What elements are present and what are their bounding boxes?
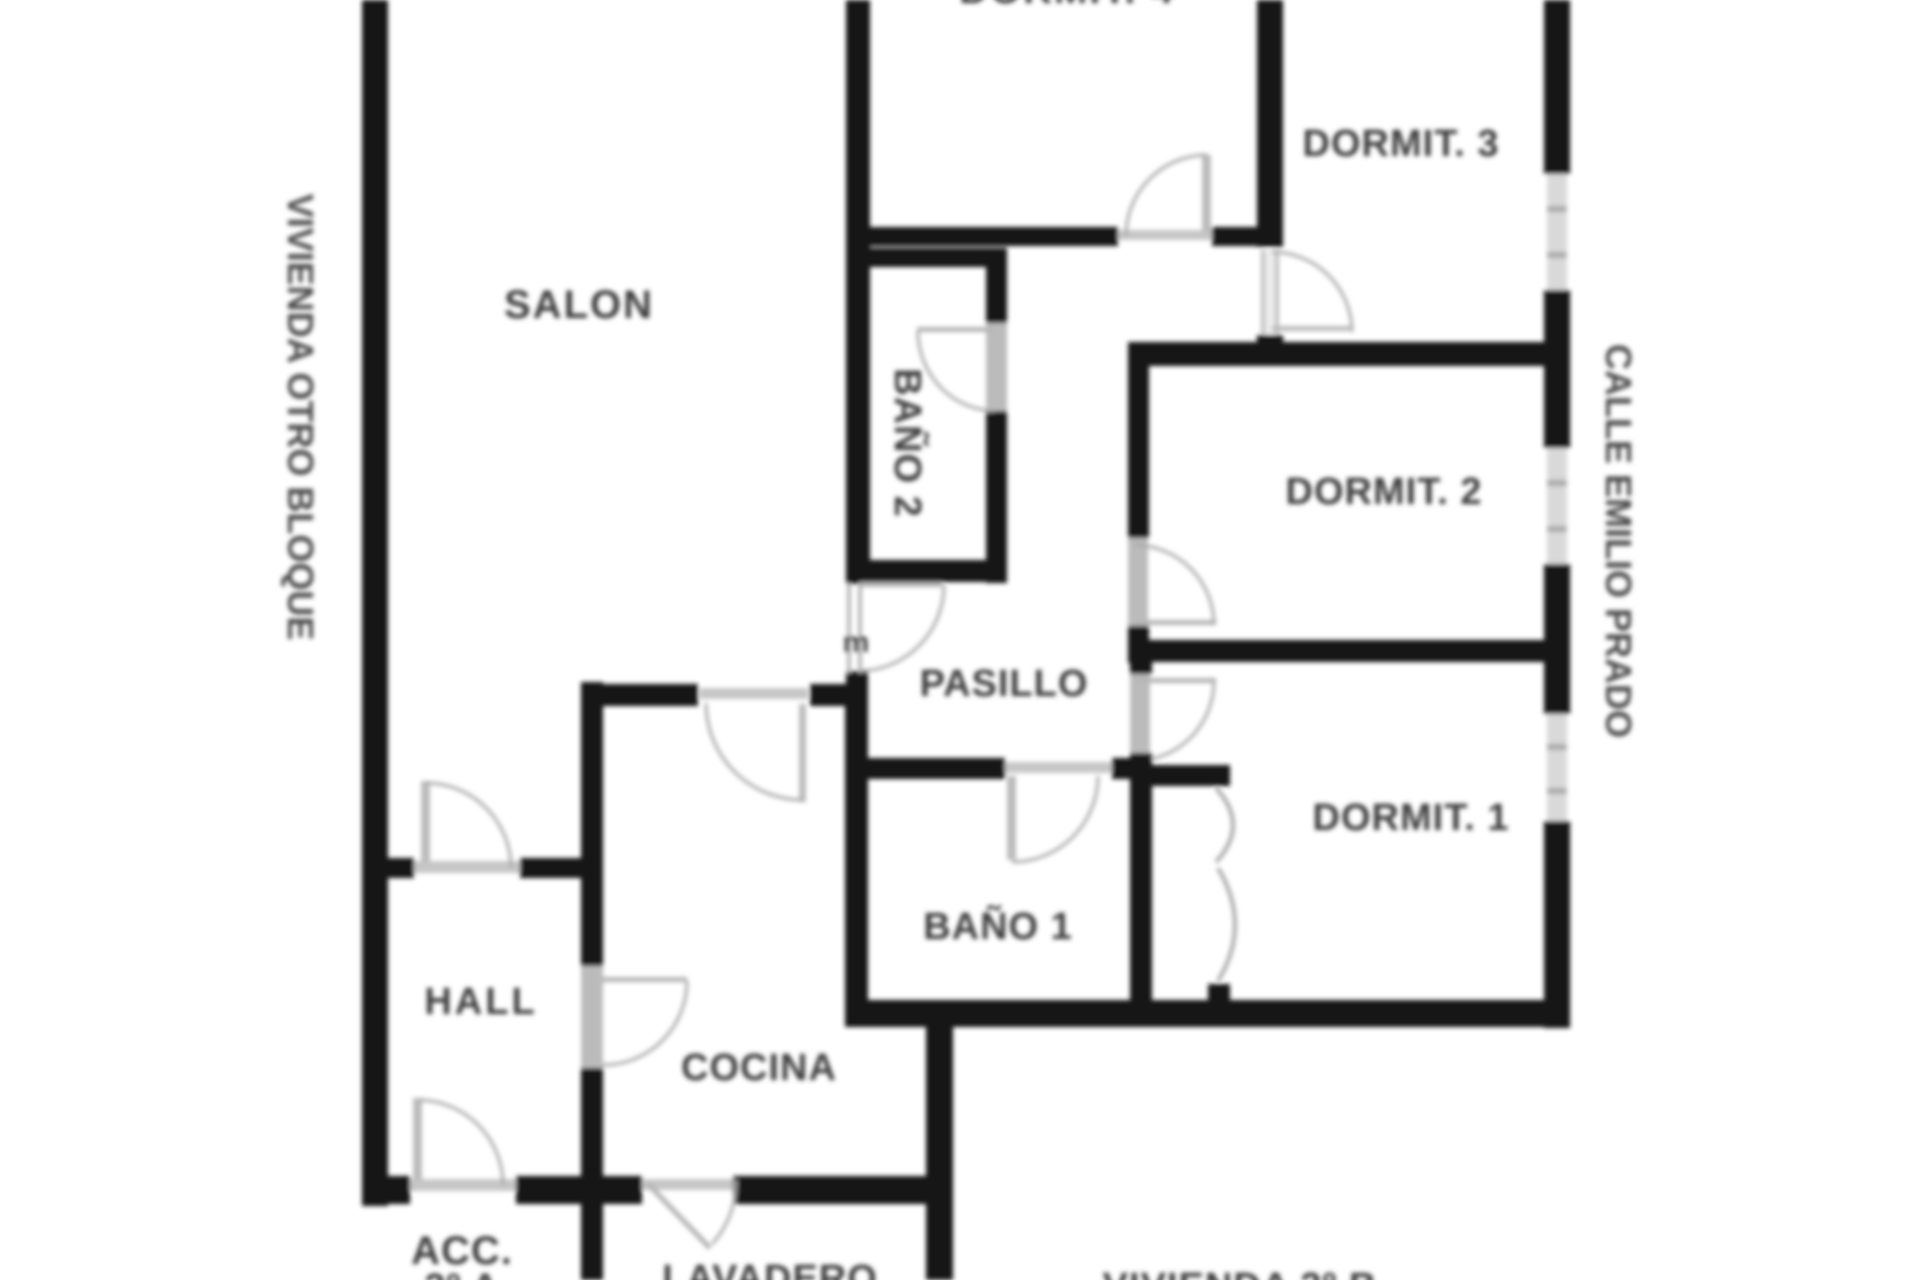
svg-text:DORMIT. 3: DORMIT. 3 <box>1303 123 1500 165</box>
svg-text:CALLE EMILIO PRADO: CALLE EMILIO PRADO <box>1598 344 1639 738</box>
svg-text:BAÑO 2: BAÑO 2 <box>886 368 930 518</box>
svg-text:BAÑO 1: BAÑO 1 <box>923 904 1073 948</box>
svg-text:DORMIT. 4: DORMIT. 4 <box>959 0 1175 12</box>
svg-text:m: m <box>843 626 870 659</box>
svg-text:VIVIENDA 2º B: VIVIENDA 2º B <box>1103 1266 1378 1280</box>
svg-text:DORMIT. 1: DORMIT. 1 <box>1313 797 1510 839</box>
svg-text:VIVIENDA OTRO BLOQUE: VIVIENDA OTRO BLOQUE <box>280 194 321 641</box>
svg-text:PASILLO: PASILLO <box>920 663 1089 705</box>
svg-text:DORMIT. 2: DORMIT. 2 <box>1286 471 1483 513</box>
svg-text:SALON: SALON <box>504 283 654 327</box>
svg-text:2º A: 2º A <box>424 1267 500 1280</box>
svg-text:COCINA: COCINA <box>681 1047 837 1089</box>
svg-text:HALL: HALL <box>424 981 537 1023</box>
svg-text:LAVADERO: LAVADERO <box>662 1258 878 1280</box>
